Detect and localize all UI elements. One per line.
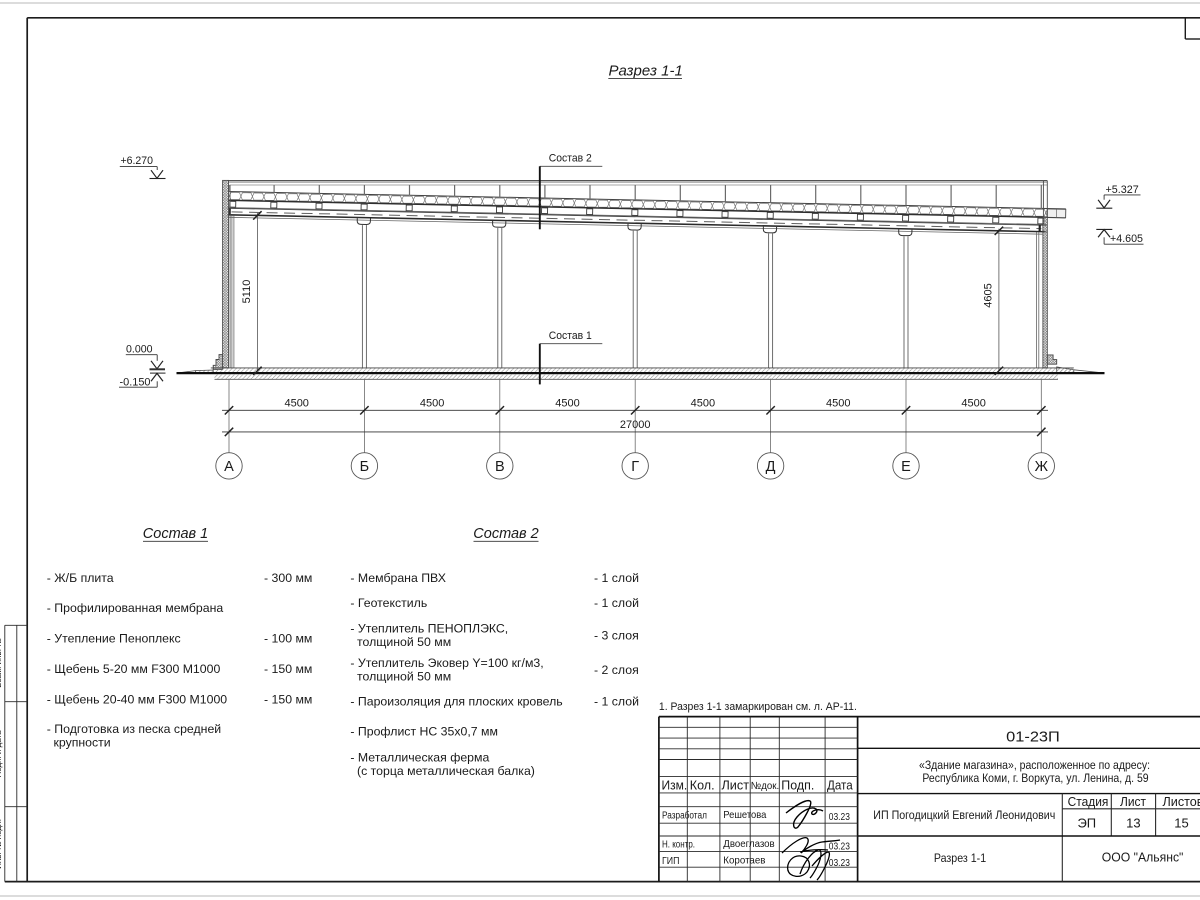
svg-text:0.000: 0.000	[126, 343, 153, 355]
svg-text:Коротаев: Коротаев	[723, 854, 766, 866]
svg-text:Ж: Ж	[1035, 459, 1049, 475]
svg-text:- 1 слой: - 1 слой	[594, 596, 639, 610]
svg-text:- 300 мм: - 300 мм	[264, 571, 312, 585]
svg-text:15: 15	[1174, 816, 1188, 831]
svg-text:ООО "Альянс": ООО "Альянс"	[1102, 849, 1184, 864]
svg-text:Д: Д	[766, 459, 776, 475]
svg-text:- Металлическая ферма: - Металлическая ферма	[350, 751, 489, 765]
svg-text:- Утепление Пеноплекс: - Утепление Пеноплекс	[47, 632, 181, 646]
svg-text:4500: 4500	[961, 397, 985, 409]
svg-text:- Геотекстиль: - Геотекстиль	[350, 596, 427, 610]
svg-text:Листов: Листов	[1163, 795, 1200, 809]
svg-text:Состав 2: Состав 2	[549, 152, 592, 164]
svg-text:- Щебень 20-40 мм F300 М1000: - Щебень 20-40 мм F300 М1000	[47, 692, 227, 706]
svg-text:Двоеглазов: Двоеглазов	[723, 838, 775, 850]
svg-text:03.23: 03.23	[829, 857, 850, 869]
svg-text:Состав 1: Состав 1	[143, 526, 208, 542]
svg-text:Дата: Дата	[827, 778, 853, 793]
svg-text:+6.270: +6.270	[121, 155, 154, 167]
svg-text:Кол.: Кол.	[690, 778, 715, 793]
svg-text:Лист: Лист	[722, 778, 750, 793]
svg-text:5110: 5110	[241, 280, 253, 304]
svg-text:- 2 слоя: - 2 слоя	[594, 663, 639, 677]
svg-text:(с торца металлическая балка): (с торца металлическая балка)	[357, 764, 535, 778]
svg-text:Лист: Лист	[1120, 795, 1146, 809]
svg-text:4500: 4500	[826, 397, 850, 409]
svg-text:Разработал: Разработал	[662, 810, 707, 822]
svg-text:Г: Г	[631, 459, 639, 475]
svg-text:- 100 мм: - 100 мм	[264, 632, 312, 646]
svg-text:- Утеплитель Эковер Y=100 кг/м: - Утеплитель Эковер Y=100 кг/м3,	[350, 656, 543, 670]
svg-text:+5.327: +5.327	[1106, 184, 1139, 196]
svg-text:Н. контр.: Н. контр.	[662, 840, 695, 851]
svg-text:- Мембрана ПВХ: - Мембрана ПВХ	[350, 571, 446, 585]
svg-text:Инв. № подл.: Инв. № подл.	[0, 819, 3, 869]
svg-text:03.23: 03.23	[829, 840, 850, 852]
svg-text:Республика Коми, г. Воркута, у: Республика Коми, г. Воркута, ул. Ленина,…	[922, 771, 1148, 785]
svg-text:Стадия: Стадия	[1068, 795, 1109, 809]
svg-text:27000: 27000	[620, 419, 651, 431]
svg-text:- Утеплитель ПЕНОПЛЭКС,: - Утеплитель ПЕНОПЛЭКС,	[350, 621, 508, 635]
svg-text:01-23П: 01-23П	[1006, 728, 1060, 745]
svg-text:- Ж/Б плита: - Ж/Б плита	[47, 571, 114, 585]
svg-text:ЭП: ЭП	[1077, 816, 1096, 831]
svg-text:В: В	[495, 459, 505, 475]
svg-text:- 1 слой: - 1 слой	[594, 571, 639, 585]
svg-text:толщиной 50 мм: толщиной 50 мм	[357, 635, 451, 649]
svg-text:Состав 2: Состав 2	[473, 526, 538, 542]
svg-text:толщиной 50 мм: толщиной 50 мм	[357, 670, 451, 684]
svg-text:ГИП: ГИП	[662, 856, 679, 867]
svg-text:4605: 4605	[983, 283, 995, 307]
svg-text:4500: 4500	[555, 397, 579, 409]
svg-text:- Щебень 5-20 мм F300 М1000: - Щебень 5-20 мм F300 М1000	[47, 662, 221, 676]
svg-text:Разрез 1-1: Разрез 1-1	[609, 63, 683, 80]
svg-text:03.23: 03.23	[829, 811, 850, 823]
svg-text:- 3 слоя: - 3 слоя	[594, 628, 639, 642]
svg-text:№док.: №док.	[751, 781, 779, 792]
svg-text:4500: 4500	[420, 397, 444, 409]
svg-text:Б: Б	[360, 459, 370, 475]
svg-text:Взам. инв. №: Взам. инв. №	[0, 638, 3, 688]
svg-text:крупности: крупности	[54, 736, 111, 750]
svg-text:13: 13	[1126, 816, 1140, 831]
svg-text:-0.150: -0.150	[120, 376, 151, 388]
svg-text:Подп.: Подп.	[781, 778, 814, 793]
svg-text:1. Разрез 1-1 замаркирован см.: 1. Разрез 1-1 замаркирован см. л. АР-11.	[659, 701, 857, 713]
svg-text:- Профилированная мембрана: - Профилированная мембрана	[47, 601, 224, 615]
svg-text:Подп. и дата: Подп. и дата	[0, 730, 3, 778]
svg-text:Разрез 1-1: Разрез 1-1	[934, 851, 986, 865]
svg-text:- 150 мм: - 150 мм	[264, 692, 312, 706]
svg-text:ИП Погодицкий Евгений Леонидов: ИП Погодицкий Евгений Леонидович	[873, 808, 1055, 822]
svg-text:4500: 4500	[691, 397, 715, 409]
svg-text:4500: 4500	[284, 397, 308, 409]
svg-text:- Профлист НС 35х0,7 мм: - Профлист НС 35х0,7 мм	[350, 725, 498, 739]
svg-text:+4.605: +4.605	[1110, 233, 1143, 245]
svg-text:Состав 1: Состав 1	[549, 330, 592, 342]
svg-text:А: А	[224, 459, 234, 475]
svg-text:- Подготовка из песка средней: - Подготовка из песка средней	[47, 722, 221, 736]
svg-text:«Здание магазина», расположенн: «Здание магазина», расположенное по адре…	[919, 758, 1150, 772]
svg-text:Изм.: Изм.	[662, 778, 688, 793]
svg-text:- 150 мм: - 150 мм	[264, 662, 312, 676]
svg-text:- 1 слой: - 1 слой	[594, 695, 639, 709]
svg-text:- Пароизоляция для плоских кро: - Пароизоляция для плоских кровель	[350, 695, 562, 709]
svg-text:Е: Е	[901, 459, 911, 475]
svg-text:Решетова: Решетова	[723, 809, 766, 821]
